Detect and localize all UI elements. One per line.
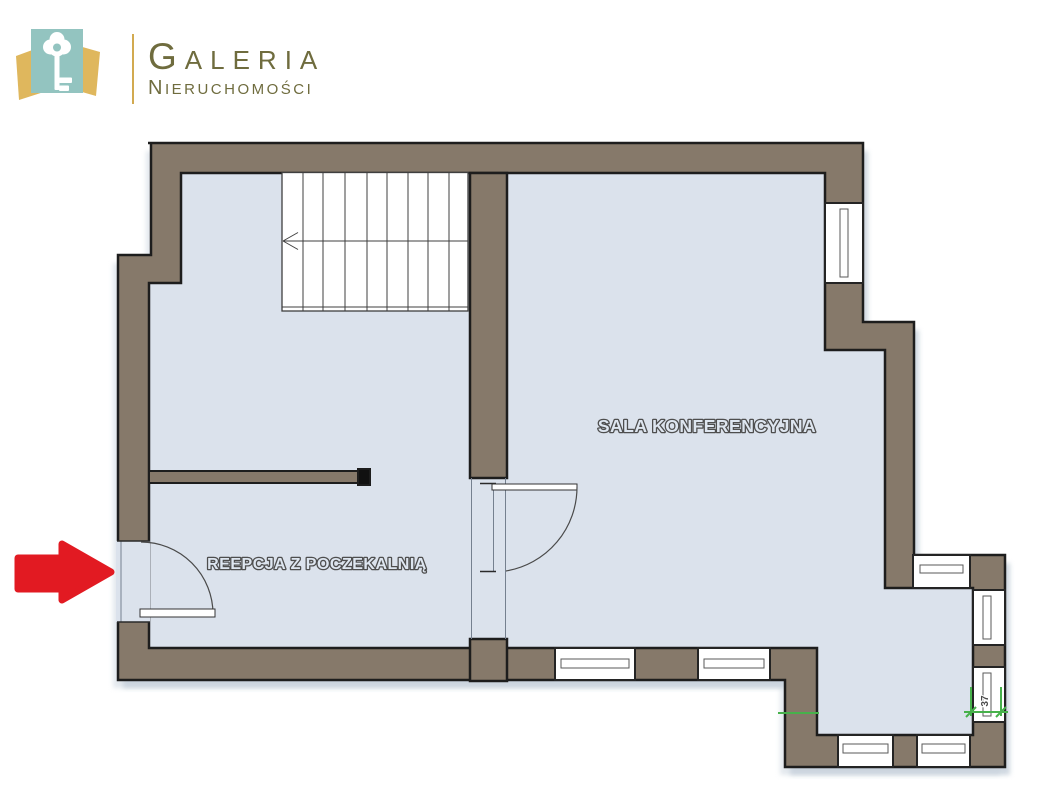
partition-wall (149, 469, 370, 485)
window (555, 648, 635, 680)
window (838, 735, 893, 767)
entrance-arrow-icon (18, 544, 111, 600)
room-label-reception: REEPCJA Z POCZEKALNIĄ (207, 556, 427, 573)
stairs (282, 173, 468, 312)
page-canvas: GALERIA NIERUCHOMOŚCI (0, 0, 1038, 800)
window (698, 648, 770, 680)
door-leaf (492, 484, 577, 490)
window (913, 555, 970, 588)
window (825, 203, 863, 283)
floor-plan: 37 SALA KONFERENCYJNA REEPCJA Z POCZEKAL… (0, 0, 1038, 800)
room-label-conference: SALA KONFERENCYJNA (598, 416, 816, 436)
door-leaf (140, 609, 215, 617)
window (917, 735, 970, 767)
dimension-label: 37 (980, 695, 991, 707)
window (973, 590, 1005, 645)
